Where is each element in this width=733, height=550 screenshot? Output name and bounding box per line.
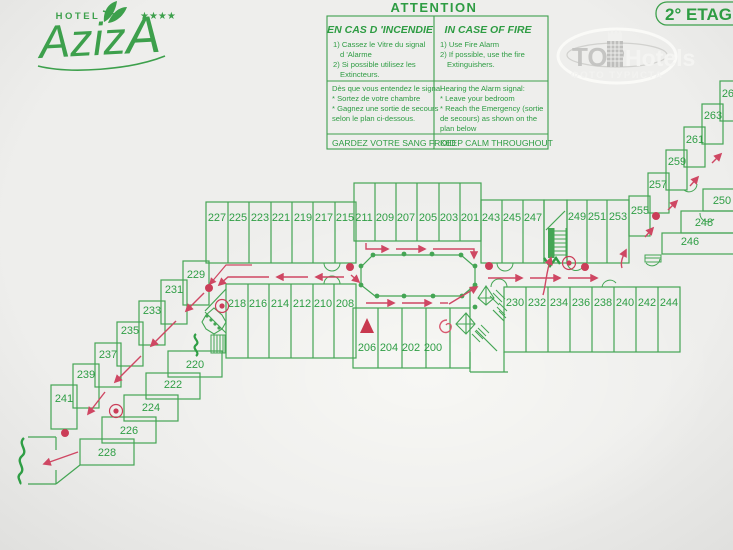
svg-text:233: 233 bbox=[143, 305, 161, 317]
svg-text:plan below: plan below bbox=[440, 124, 477, 133]
svg-text:EN CAS D 'INCENDIE: EN CAS D 'INCENDIE bbox=[327, 24, 434, 36]
svg-text:* Gagnez une sortie de secours: * Gagnez une sortie de secours bbox=[332, 104, 439, 113]
svg-text:Extincteurs.: Extincteurs. bbox=[340, 70, 380, 79]
svg-text:217: 217 bbox=[315, 212, 333, 224]
svg-text:* Reach the Emergency (sortie: * Reach the Emergency (sortie bbox=[440, 104, 543, 113]
svg-text:247: 247 bbox=[524, 212, 542, 224]
svg-text:1) Cassez le Vitre du signal: 1) Cassez le Vitre du signal bbox=[333, 40, 426, 49]
svg-text:261: 261 bbox=[686, 134, 704, 146]
svg-text:205: 205 bbox=[419, 212, 437, 224]
svg-text:218: 218 bbox=[228, 298, 246, 310]
svg-text:de secours) as shown on the: de secours) as shown on the bbox=[440, 114, 537, 123]
svg-text:AzizA: AzizA bbox=[35, 6, 162, 70]
svg-text:234: 234 bbox=[550, 297, 568, 309]
svg-text:255: 255 bbox=[631, 205, 649, 217]
svg-text:227: 227 bbox=[208, 212, 226, 224]
svg-text:253: 253 bbox=[609, 211, 627, 223]
svg-text:232: 232 bbox=[528, 297, 546, 309]
svg-text:236: 236 bbox=[572, 297, 590, 309]
svg-text:Extinguishers.: Extinguishers. bbox=[447, 60, 495, 69]
svg-text:207: 207 bbox=[397, 212, 415, 224]
svg-text:251: 251 bbox=[588, 211, 606, 223]
svg-text:259: 259 bbox=[668, 156, 686, 168]
svg-text:ФОТО ТУРИСТА: ФОТО ТУРИСТА bbox=[571, 70, 664, 81]
svg-text:selon le plan ci-dessous.: selon le plan ci-dessous. bbox=[332, 114, 415, 123]
svg-text:249: 249 bbox=[568, 211, 586, 223]
svg-text:244: 244 bbox=[660, 297, 678, 309]
svg-text:240: 240 bbox=[616, 297, 634, 309]
svg-text:219: 219 bbox=[294, 212, 312, 224]
svg-text:211: 211 bbox=[355, 212, 373, 224]
svg-text:* Leave your bedroom: * Leave your bedroom bbox=[440, 94, 515, 103]
svg-text:200: 200 bbox=[424, 342, 442, 354]
svg-text:241: 241 bbox=[55, 393, 73, 405]
svg-text:203: 203 bbox=[440, 212, 458, 224]
svg-text:216: 216 bbox=[249, 298, 267, 310]
svg-text:228: 228 bbox=[98, 447, 116, 459]
svg-text:208: 208 bbox=[336, 298, 354, 310]
svg-text:243: 243 bbox=[482, 212, 500, 224]
svg-text:IN CASE OF FIRE: IN CASE OF FIRE bbox=[445, 24, 533, 36]
svg-text:2) If possible, use the fire: 2) If possible, use the fire bbox=[440, 50, 525, 59]
svg-text:231: 231 bbox=[165, 284, 183, 296]
svg-text:257: 257 bbox=[649, 179, 667, 191]
svg-text:250: 250 bbox=[713, 195, 731, 207]
svg-text:229: 229 bbox=[187, 269, 205, 281]
svg-text:GARDEZ VOTRE SANG FROID: GARDEZ VOTRE SANG FROID bbox=[332, 138, 456, 148]
svg-text:263: 263 bbox=[704, 110, 722, 122]
svg-text:210: 210 bbox=[314, 298, 332, 310]
svg-text:206: 206 bbox=[358, 342, 376, 354]
svg-text:* Sortez de votre chambre: * Sortez de votre chambre bbox=[332, 94, 420, 103]
svg-text:ATTENTION: ATTENTION bbox=[391, 0, 478, 15]
svg-text:209: 209 bbox=[376, 212, 394, 224]
svg-text:248: 248 bbox=[695, 217, 713, 229]
svg-text:239: 239 bbox=[77, 369, 95, 381]
svg-text:Hotels: Hotels bbox=[625, 45, 695, 71]
svg-text:202: 202 bbox=[402, 342, 420, 354]
svg-text:201: 201 bbox=[461, 212, 479, 224]
svg-text:d 'Alarme: d 'Alarme bbox=[340, 50, 372, 59]
svg-text:235: 235 bbox=[121, 325, 139, 337]
svg-text:214: 214 bbox=[271, 298, 289, 310]
svg-text:Hearing the Alarm signal:: Hearing the Alarm signal: bbox=[440, 84, 525, 93]
svg-text:212: 212 bbox=[293, 298, 311, 310]
svg-text:Dès que vous entendez le signa: Dès que vous entendez le signal bbox=[332, 84, 442, 93]
svg-text:KEEP CALM THROUGHOUT: KEEP CALM THROUGHOUT bbox=[440, 138, 554, 148]
svg-text:2) Si possible utilisez les: 2) Si possible utilisez les bbox=[333, 60, 416, 69]
svg-text:226: 226 bbox=[120, 425, 138, 437]
svg-text:220: 220 bbox=[186, 359, 204, 371]
svg-text:237: 237 bbox=[99, 349, 117, 361]
svg-text:204: 204 bbox=[380, 342, 398, 354]
svg-text:223: 223 bbox=[251, 212, 269, 224]
svg-text:265: 265 bbox=[722, 88, 733, 100]
svg-text:2° ETAG: 2° ETAG bbox=[665, 5, 732, 24]
svg-text:242: 242 bbox=[638, 297, 656, 309]
svg-text:215: 215 bbox=[336, 212, 354, 224]
svg-text:221: 221 bbox=[272, 212, 290, 224]
svg-text:225: 225 bbox=[229, 212, 247, 224]
svg-text:238: 238 bbox=[594, 297, 612, 309]
svg-text:246: 246 bbox=[681, 236, 699, 248]
svg-text:230: 230 bbox=[506, 297, 524, 309]
svg-text:224: 224 bbox=[142, 402, 160, 414]
svg-text:222: 222 bbox=[164, 379, 182, 391]
svg-text:245: 245 bbox=[503, 212, 521, 224]
svg-text:1) Use Fire Alarm: 1) Use Fire Alarm bbox=[440, 40, 499, 49]
